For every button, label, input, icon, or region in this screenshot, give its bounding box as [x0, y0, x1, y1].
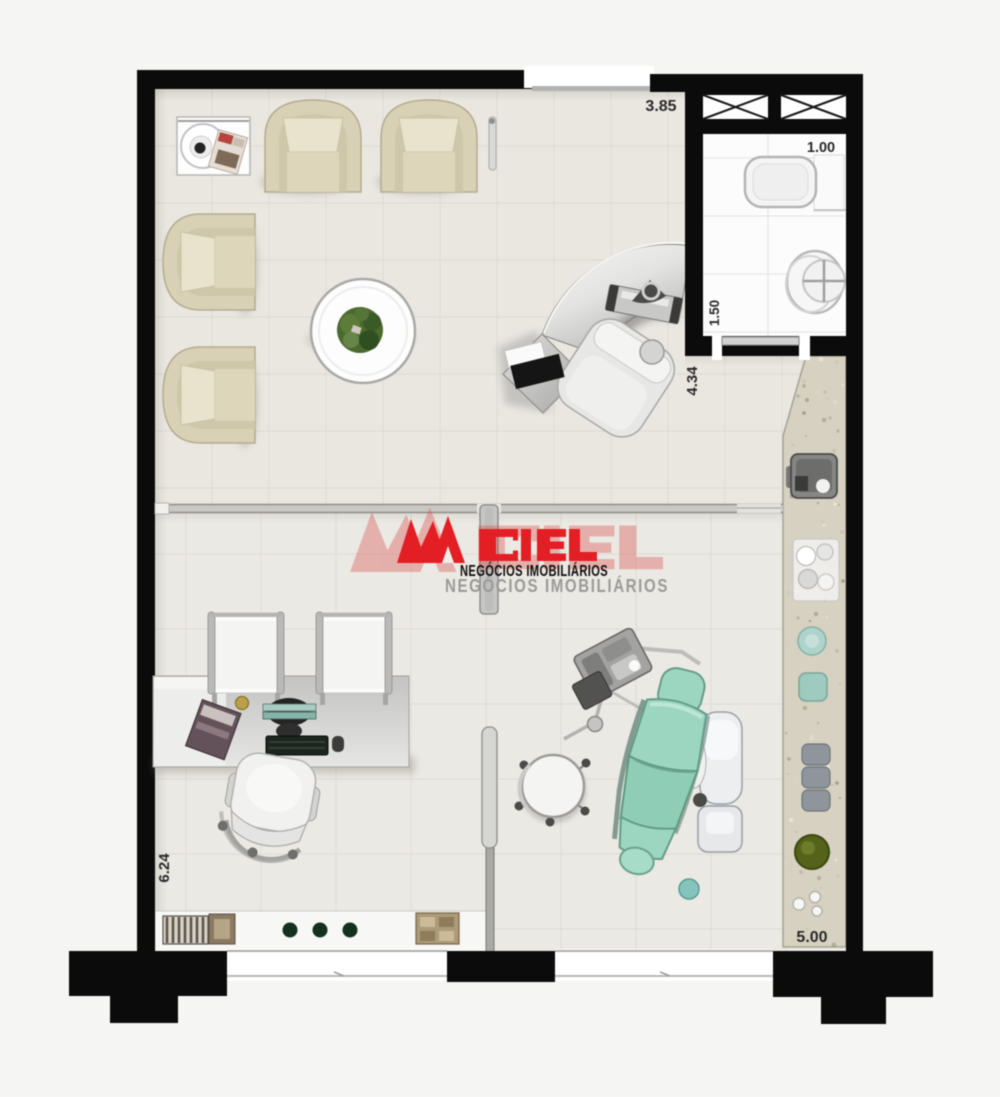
- svg-text:4.34: 4.34: [684, 366, 701, 396]
- svg-text:1.00: 1.00: [807, 140, 835, 156]
- svg-text:5.00: 5.00: [796, 929, 827, 946]
- svg-text:NEGÓCIOS IMOBILIÁRIOS: NEGÓCIOS IMOBILIÁRIOS: [460, 562, 608, 580]
- svg-text:6.24: 6.24: [156, 853, 173, 883]
- svg-text:3.85: 3.85: [645, 98, 676, 115]
- svg-text:1.50: 1.50: [707, 300, 722, 326]
